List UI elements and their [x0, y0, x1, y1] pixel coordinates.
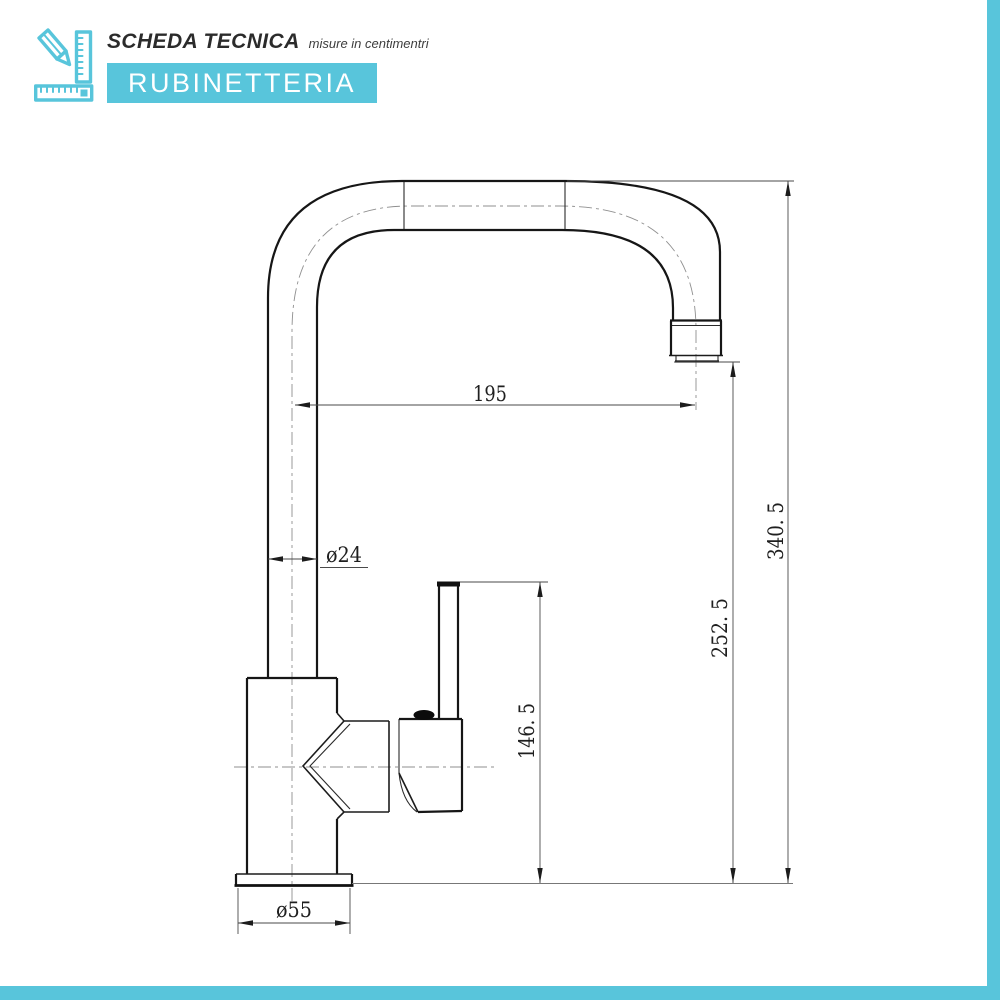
- connector-ring: [389, 719, 417, 812]
- frame-bar-right: [987, 0, 1000, 1000]
- dim-label-spout-height: 252. 5: [708, 598, 732, 658]
- scheda-tecnica-page: SCHEDA TECNICA misure in centimentri RUB…: [0, 0, 1000, 1000]
- dimension-total-height: 340. 5: [567, 181, 794, 883]
- cone-top-edge: [337, 713, 389, 721]
- dimension-spout-height: 252. 5: [674, 362, 740, 883]
- faucet-technical-drawing: 195 ø24 340. 5 252. 5: [0, 0, 1000, 1000]
- arrow-up: [537, 582, 542, 597]
- arrow-right: [680, 402, 695, 407]
- arrow-right: [302, 556, 317, 561]
- arrow-left: [238, 920, 253, 925]
- frame-bar-bottom: [0, 986, 1000, 1000]
- dimension-spout-reach: 195: [295, 382, 695, 408]
- cone-bottom-edge: [337, 812, 389, 819]
- handle-housing: [399, 719, 462, 812]
- arrow-right: [335, 920, 350, 925]
- temperature-indicator-dot: [414, 710, 435, 720]
- arrow-up: [730, 362, 735, 377]
- dim-label-handle-height: 146. 5: [515, 703, 539, 759]
- dim-label-pipe-diameter: ø24: [326, 543, 362, 567]
- dimension-handle-height: 146. 5: [460, 582, 548, 883]
- dimension-base-diameter: ø55: [238, 888, 350, 934]
- centerlines: [234, 206, 696, 901]
- arrow-left: [268, 556, 283, 561]
- dim-label-spout-reach: 195: [473, 382, 507, 406]
- arrow-down: [785, 868, 790, 883]
- cone-slant-outer: [303, 721, 344, 812]
- cone-joint: [303, 713, 389, 819]
- dim-label-total-height: 340. 5: [764, 502, 788, 560]
- tube-inner-edge: [317, 230, 673, 678]
- arrow-left: [295, 402, 310, 407]
- dim-label-base-diameter: ø55: [276, 898, 312, 922]
- arrow-down: [537, 868, 542, 883]
- housing-bevel-cut: [399, 773, 418, 812]
- handle-lever: [437, 583, 460, 718]
- housing-bottom-edge: [418, 811, 462, 812]
- arrow-up: [785, 181, 790, 196]
- arrow-down: [730, 868, 735, 883]
- base-flange: [235, 874, 354, 886]
- faucet-outline: [235, 181, 724, 886]
